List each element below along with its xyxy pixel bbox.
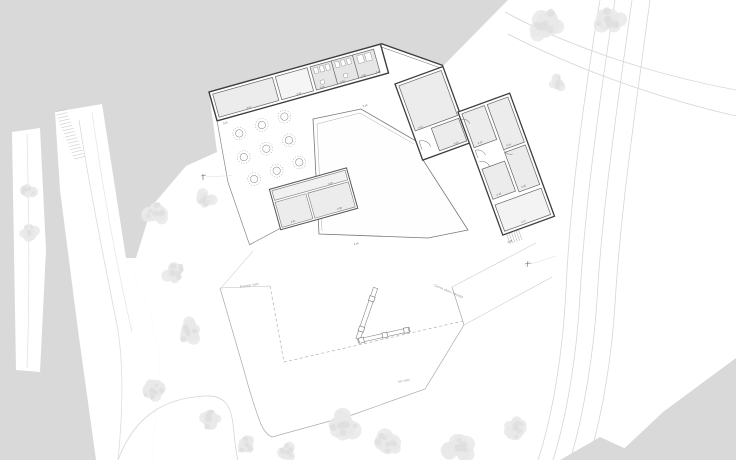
site-plan-canvas: 0.01 0.02 0.03 0.04 0.05 0.06 0.07 0.08 … [0, 0, 736, 460]
bench-post [358, 337, 364, 343]
site-plan-page: 0.01 0.02 0.03 0.04 0.05 0.06 0.07 0.08 … [0, 0, 736, 460]
bench-post [382, 332, 388, 338]
bench-post [403, 327, 409, 333]
